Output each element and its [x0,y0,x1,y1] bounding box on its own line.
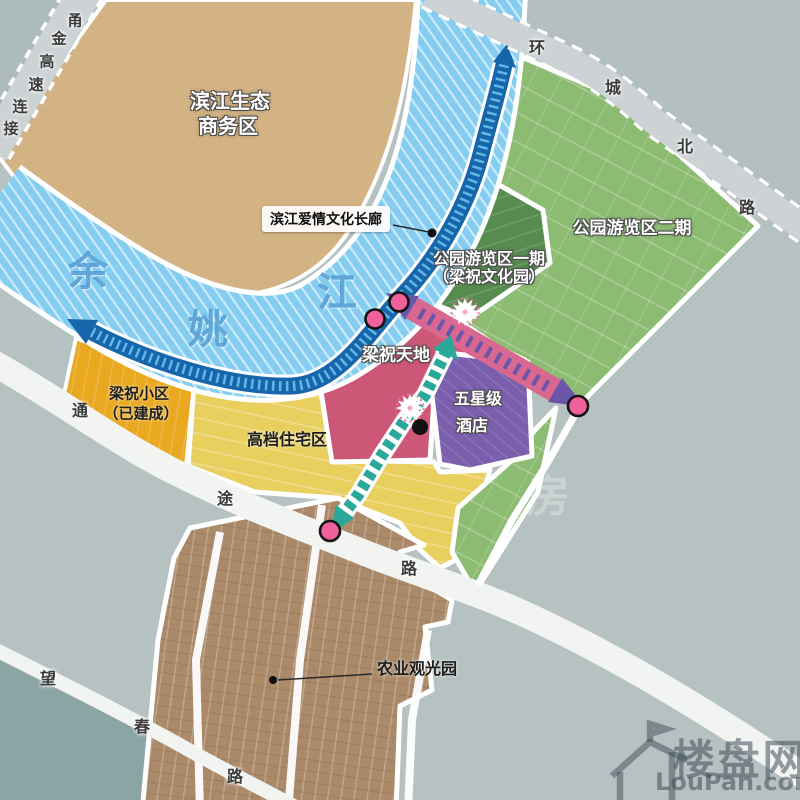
river-name-char: 江 [317,273,357,313]
road-yongjin-char: 接 [3,122,18,137]
planning-map: 滨江生态 商务区 公园游览区二期 公园游览区一期 （梁祝文化园） 梁祝天地 五星… [0,0,800,800]
road-tongtu-char: 途 [217,491,233,507]
label-residential: 高档住宅区 [247,432,327,448]
road-yongjin-char: 金 [51,32,66,47]
road-wangchun-char: 路 [227,769,243,785]
label-community-line2: （已建成） [103,407,178,422]
road-yongjin-char: 高 [39,55,54,70]
label-agriculture: 农业观光园 [377,661,457,677]
road-huancheng-char: 北 [677,139,693,155]
label-park-phase2: 公园游览区二期 [573,221,692,238]
road-wangchun-char: 春 [134,719,150,735]
road-tongtu-char: 通 [72,403,88,419]
road-huancheng-char: 环 [529,40,545,56]
watermark-domain: LouPan.com [655,768,800,796]
road-huancheng-char: 城 [605,80,621,96]
road-yongjin-char: 连 [12,100,27,115]
label-business-district-line1: 滨江生态 [190,91,270,111]
road-tongtu-char: 路 [401,561,417,577]
label-park-phase1-line1: 公园游览区一期 [433,251,545,267]
label-business-district-line2: 商务区 [198,116,258,136]
label-layer: 滨江生态 商务区 公园游览区二期 公园游览区一期 （梁祝文化园） 梁祝天地 五星… [0,0,800,800]
label-liangzhu-world: 梁祝天地 [362,348,430,365]
label-park-phase1-line2: （梁祝文化园） [433,269,545,285]
river-name-char: 姚 [188,310,228,350]
label-hotel-line1: 五星级 [454,391,502,407]
road-wangchun-char: 望 [40,671,56,687]
label-community-line1: 梁祝小区 [109,387,169,402]
river-name-char: 余 [68,252,108,292]
road-huancheng-char: 路 [739,200,755,216]
road-yongjin-char: 速 [28,78,43,93]
corridor-label: 滨江爱情文化长廊 [262,206,390,232]
label-hotel-line2: 酒店 [456,418,488,434]
road-yongjin-char: 甬 [67,14,82,29]
ghost-watermark: 房 [526,460,570,524]
